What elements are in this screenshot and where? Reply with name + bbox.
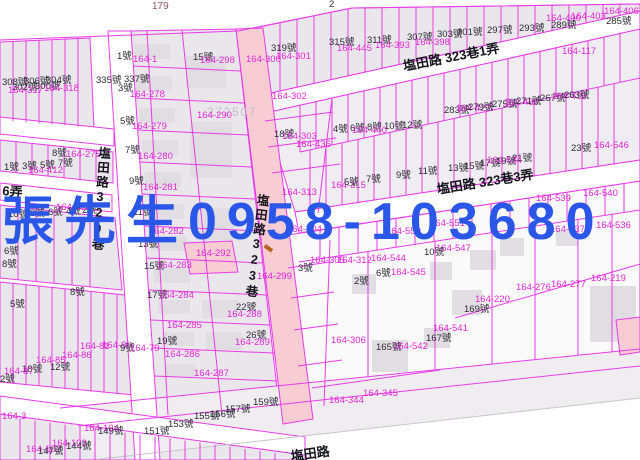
- block-left-4: [0, 282, 135, 395]
- block-top-left: [0, 38, 94, 128]
- watermark-phone-text: 張先生0958-103680: [2, 190, 605, 255]
- cadastral-map[interactable]: 1792272507319號164-300164-301315號164-4453…: [0, 0, 640, 460]
